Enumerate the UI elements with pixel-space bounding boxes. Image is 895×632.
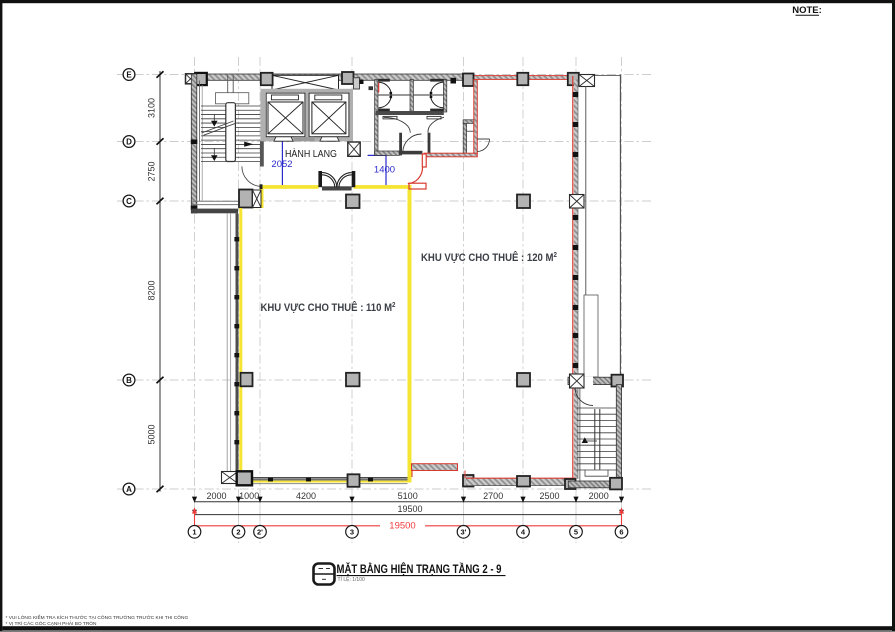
svg-text:* VUI LÒNG KIỂM TRA KÍCH THƯỚC: * VUI LÒNG KIỂM TRA KÍCH THƯỚC TẠI CÔNG … — [6, 614, 189, 621]
svg-text:* VỊ TRÍ CÁC GÓC CẠNH PHẢI BO: * VỊ TRÍ CÁC GÓC CẠNH PHẢI BO TRÒN — [6, 620, 98, 627]
svg-text:E: E — [126, 70, 132, 79]
svg-text:2000: 2000 — [206, 491, 226, 501]
svg-text:A: A — [126, 485, 132, 494]
svg-text:2052: 2052 — [271, 159, 292, 170]
svg-text:KHU VỰC CHO THUÊ : 120 M2: KHU VỰC CHO THUÊ : 120 M2 — [421, 251, 557, 264]
svg-text:1400: 1400 — [374, 165, 395, 176]
svg-text:B: B — [126, 376, 132, 385]
svg-text:MẶT BẰNG HIỆN TRẠNG TẦNG 2 - 9: MẶT BẰNG HIỆN TRẠNG TẦNG 2 - 9 — [337, 563, 502, 576]
svg-text:4200: 4200 — [296, 491, 316, 501]
svg-text:2500: 2500 — [539, 491, 559, 501]
svg-text:8200: 8200 — [147, 280, 157, 300]
svg-text:19500: 19500 — [389, 521, 415, 532]
svg-text:19500: 19500 — [397, 504, 422, 514]
svg-text:5: 5 — [574, 528, 578, 537]
svg-text:TỈ LỆ: 1/100: TỈ LỆ: 1/100 — [338, 575, 365, 583]
svg-text:NOTE:: NOTE: — [792, 5, 822, 16]
svg-text:2700: 2700 — [483, 491, 503, 501]
svg-text:3: 3 — [350, 528, 354, 537]
svg-text:3100: 3100 — [147, 98, 157, 118]
svg-text:2750: 2750 — [147, 161, 157, 181]
svg-text:2': 2' — [257, 528, 263, 537]
svg-text:1000: 1000 — [239, 491, 259, 501]
svg-text:3': 3' — [461, 528, 467, 537]
svg-text:2000: 2000 — [589, 491, 609, 501]
svg-text:HÀNH LANG: HÀNH LANG — [285, 147, 337, 160]
svg-text:C: C — [126, 197, 132, 206]
svg-text:D: D — [126, 137, 132, 146]
svg-text:6: 6 — [619, 528, 623, 537]
svg-text:5000: 5000 — [147, 424, 157, 444]
svg-text:5100: 5100 — [398, 491, 418, 501]
svg-text:KHU VỰC CHO THUÊ : 110 M2: KHU VỰC CHO THUÊ : 110 M2 — [261, 301, 396, 314]
svg-text:1: 1 — [192, 528, 196, 537]
svg-text:2: 2 — [236, 528, 240, 537]
